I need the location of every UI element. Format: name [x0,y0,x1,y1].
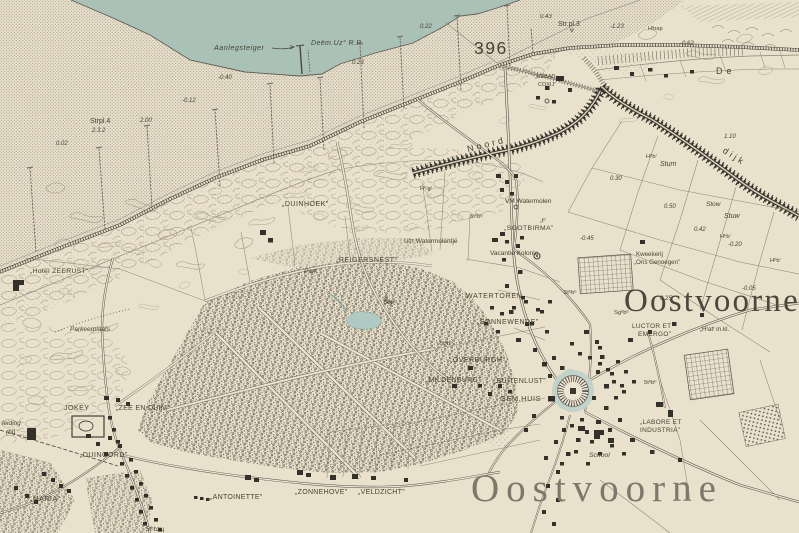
svg-text:„tᵇ: „tᵇ [540,217,547,224]
svg-text:„MILDENBURG”: „MILDENBURG” [426,377,481,384]
svg-text:396: 396 [474,38,508,58]
svg-text:School: School [589,452,610,459]
svg-text:EMERGO”: EMERGO” [638,331,671,338]
svg-text:WATERTOREN: WATERTOREN [466,293,523,300]
svg-text:Hᵗtrap: Hᵗtrap [648,25,663,32]
svg-text:Aanlegsteiger: Aanlegsteiger [213,43,265,52]
svg-text:„ZONNEHOVE”: „ZONNEHOVE” [295,489,348,496]
svg-text:0.50: 0.50 [664,204,676,210]
svg-text:„REIGERSNEST”: „REIGERSNEST” [336,257,398,264]
svg-text:-1.23: -1.23 [610,24,624,30]
svg-text:Strpl.4: Strpl.4 [90,118,110,125]
svg-text:0.25: 0.25 [660,296,672,302]
svg-text:„EEBAD: „EEBAD [535,74,556,80]
svg-text:„Hotel ZEERUST”: „Hotel ZEERUST” [30,268,89,275]
svg-text:JOKEY: JOKEY [64,405,89,412]
svg-text:Parkeerplaats: Parkeerplaats [70,326,111,333]
svg-text:5tᵇbᵇ: 5tᵇbᵇ [644,379,657,386]
svg-text:0.43: 0.43 [540,14,552,20]
svg-text:5tᵇbᵇ: 5tᵇbᵇ [470,213,483,220]
svg-text:Hᵇbʹ: Hᵇbʹ [770,257,781,264]
svg-text:5tᵇbᵇ: 5tᵇbᵇ [440,340,453,347]
svg-text:0.42: 0.42 [694,227,706,233]
svg-text:Str.pl.3: Str.pl.3 [558,21,580,28]
svg-text:Sgᵇbᵇ: Sgᵇbᵇ [614,309,630,316]
svg-text:De: De [716,66,736,76]
svg-text:0.23: 0.23 [352,60,364,66]
svg-text:Hᵇbʹ: Hᵇbʹ [646,153,657,160]
svg-text:„SONNEWENDE”: „SONNEWENDE” [477,319,539,326]
svg-text:Vacantie Kolonie: Vacantie Kolonie [490,250,539,257]
svg-text:Stow: Stow [706,201,722,208]
svg-text:(bl): (bl) [6,429,15,436]
svg-text:„Hᵗatᵗ m.kl.: „Hᵗatᵗ m.kl. [700,326,729,333]
svg-text:5tᵇbᵇ: 5tᵇbᵇ [564,289,577,296]
svg-text:Stuw: Stuw [724,213,741,220]
svg-text:„ANTOINETTE”: „ANTOINETTE” [210,494,263,501]
svg-text:„DUINHOEK”: „DUINHOEK” [282,201,329,208]
svg-text:5tᵇbzʮ: 5tᵇbzʮ [146,526,164,533]
svg-text:Hᵇʹgʹ: Hᵇʹgʹ [420,185,432,192]
svg-text:„BUITENLUST”: „BUITENLUST” [494,378,546,385]
svg-text:Kweekerij: Kweekerij [636,251,663,258]
svg-text:2.3.2: 2.3.2 [91,128,106,134]
svg-text:LUCTOR ET: LUCTOR ET [632,323,671,330]
svg-text:Park: Park [304,268,318,275]
svg-text:-0.45: -0.45 [580,236,594,242]
svg-text:„ZEE EN DUIN”: „ZEE EN DUIN” [116,405,169,412]
svg-text:COXIJ”: COXIJ” [538,82,556,88]
svg-text:Hᵇbʹ: Hᵇbʹ [720,233,731,240]
svg-text:VM Watermolen: VM Watermolen [505,198,552,205]
svg-text:2.00: 2.00 [139,118,152,124]
svg-text:-0.05: -0.05 [742,286,756,292]
svg-text:„SGOTBIRMA”: „SGOTBIRMA” [504,225,554,232]
svg-text:„MARIA”: „MARIA” [30,496,61,503]
svg-text:-0.12: -0.12 [182,98,196,104]
svg-text:„OVERBURGH”: „OVERBURGH” [450,357,505,364]
svg-text:GEM.HUIS: GEM.HUIS [500,394,541,403]
svg-text:1.10: 1.10 [724,134,736,140]
svg-text:„LABORE ET: „LABORE ET [640,419,682,426]
svg-text:Deëm.Uz° R.P.: Deëm.Uz° R.P. [311,39,363,47]
svg-text:-0.20: -0.20 [728,242,742,248]
svg-text:„DUINOORD”: „DUINOORD” [80,452,128,459]
svg-text:Stum: Stum [660,161,677,168]
svg-text:0.02: 0.02 [56,141,68,147]
svg-text:„Ons Genoegen”: „Ons Genoegen” [634,259,680,266]
svg-text:Uzʸ Watermolentje: Uzʸ Watermolentje [404,238,458,245]
svg-text:0.22: 0.22 [420,24,432,30]
svg-text:leiding: leiding [2,420,21,427]
svg-text:-0.62: -0.62 [680,41,694,47]
svg-text:Oostvoorne: Oostvoorne [471,467,723,510]
svg-text:„VELDZICHT”: „VELDZICHT” [358,489,405,496]
svg-text:0.30: 0.30 [610,176,622,182]
svg-text:INDUSTRIA”: INDUSTRIA” [640,427,680,434]
svg-text:-0.40: -0.40 [218,75,232,81]
svg-text:Oostvoorne: Oostvoorne [624,283,799,319]
